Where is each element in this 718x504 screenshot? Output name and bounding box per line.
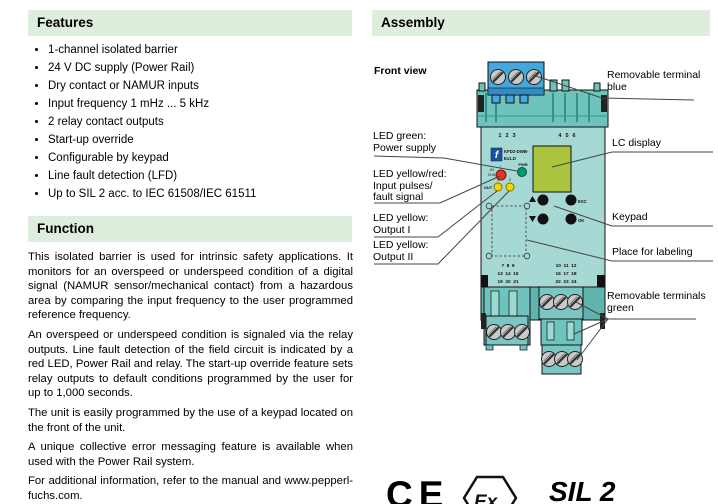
terminal-numbers-bottom-right: 10 11 12: [556, 263, 577, 269]
callout-lc-display: LC display: [612, 138, 661, 150]
callout-keypad: Keypad: [612, 212, 648, 224]
in-led-label: IN: [490, 168, 494, 172]
ok-button-label: OK: [578, 218, 584, 223]
svg-text:Ex: Ex: [474, 492, 499, 504]
pf-logo-icon: f: [491, 148, 502, 161]
out2-led-number: 2: [509, 178, 511, 182]
callout-led-output2: LED yellow: Output II: [373, 240, 428, 263]
face-clip: [597, 275, 605, 287]
keypad-button-ok: [566, 214, 577, 225]
lc-display-screen: [533, 146, 571, 192]
keypad-button-esc: [566, 195, 577, 206]
terminal-numbers-bottom-left: 7 8 9: [501, 263, 514, 269]
screw-icon: [487, 325, 502, 340]
terminal-numbers-bottom-right: 16 17 18: [555, 271, 576, 277]
callout-led-green: LED green: Power supply: [373, 131, 436, 154]
mount-clip: [481, 313, 486, 329]
screw-icon: [515, 325, 530, 340]
screw-icon: [568, 295, 583, 310]
front-view-label: Front view: [374, 66, 427, 78]
keypad-button-up: [538, 195, 549, 206]
screw-icon: [540, 295, 555, 310]
keypad-button-down: [538, 214, 549, 225]
screw-icon: [501, 325, 516, 340]
mount-clip: [478, 95, 484, 112]
model-label-line1: KFD2-DWB-: [504, 149, 529, 154]
led-power-green: [518, 168, 527, 177]
screw-icon: [568, 352, 583, 367]
esc-button-label: ESC: [578, 199, 587, 204]
terminal-numbers-bottom-left: 19 20 21: [497, 279, 518, 285]
callout-labeling: Place for labeling: [612, 247, 693, 259]
pwr-led-label: PWR: [518, 162, 527, 167]
model-label-line2: Ex1.D: [504, 156, 516, 161]
led-output1-yellow: [494, 183, 502, 191]
datasheet-page: Features 1-channel isolated barrier 24 V…: [0, 0, 718, 504]
terminal-numbers-top-left: 1 2 3: [498, 133, 515, 139]
terminal-numbers-bottom-right: 22 23 24: [555, 279, 576, 285]
out-led-label: OUT: [484, 185, 493, 190]
screw-icon: [491, 70, 506, 85]
callout-terminals-green: Removable terminals green: [607, 291, 706, 314]
screw-icon: [554, 295, 569, 310]
terminal-numbers-top-right: 4 5 6: [558, 133, 575, 139]
ce-mark: CE: [386, 476, 449, 504]
terminal-numbers-bottom-left: 13 14 15: [497, 271, 518, 277]
led-output2-yellow: [506, 183, 514, 191]
callout-led-yellow-red: LED yellow/red: Input pulses/ fault sign…: [373, 169, 447, 204]
callout-led-output1: LED yellow: Output I: [373, 213, 428, 236]
face-clip: [481, 275, 488, 287]
chk-led-label: CHK: [488, 173, 496, 177]
ex-mark-icon: Ex: [464, 477, 516, 504]
callout-terminal-blue: Removable terminal blue: [607, 70, 700, 93]
screw-icon: [509, 70, 524, 85]
sil2-mark: SIL 2: [549, 478, 615, 504]
out1-led-number: 1: [497, 178, 499, 182]
terminal-blocks-green: [481, 287, 605, 374]
